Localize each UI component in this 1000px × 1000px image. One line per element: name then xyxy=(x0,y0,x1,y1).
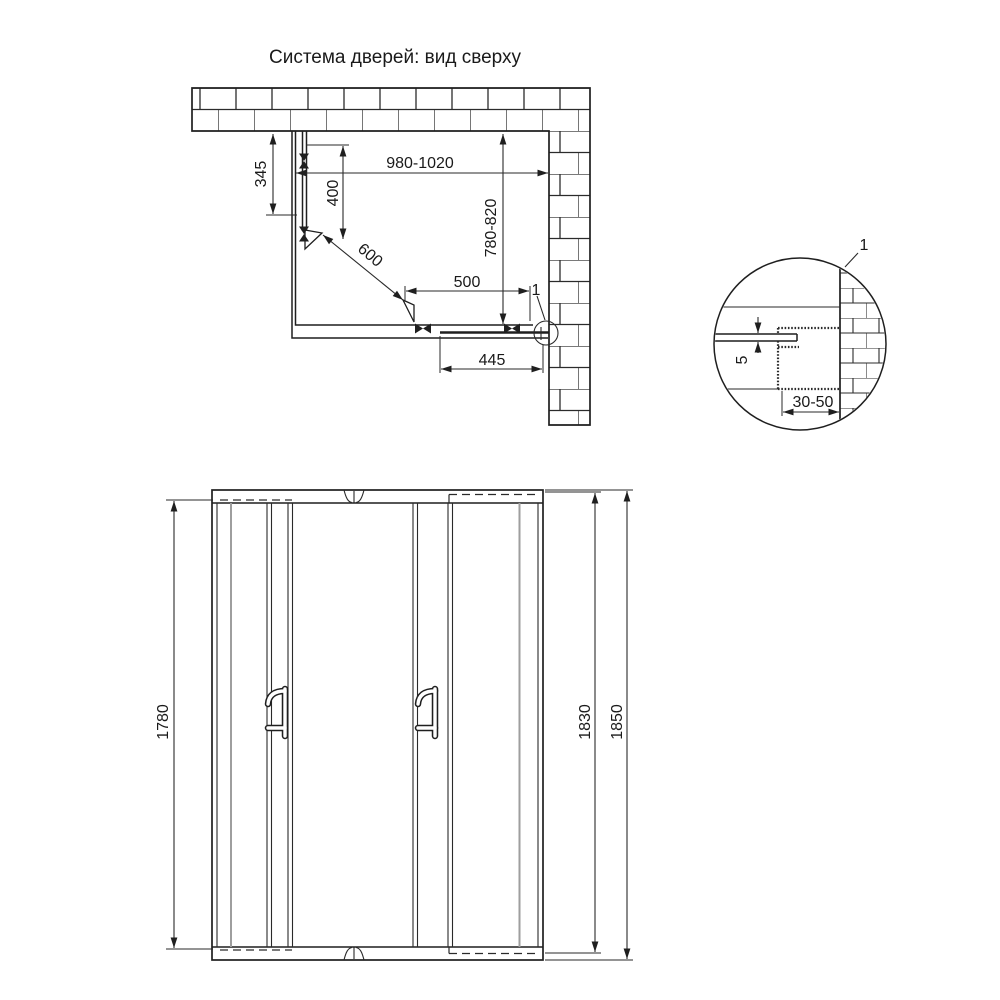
drawing-title: Система дверей: вид сверху xyxy=(269,47,522,68)
dim-width-label: 980-1020 xyxy=(386,155,454,172)
dim-door-panel-label: 445 xyxy=(479,352,506,369)
dim-345-label: 345 xyxy=(253,161,270,188)
rail-bracket-top xyxy=(344,490,364,503)
dim-1850-label: 1850 xyxy=(609,704,626,740)
drawing-canvas: Система дверей: вид сверху 1 xyxy=(0,0,1000,1000)
entry-triangle-lower xyxy=(403,300,414,322)
dim-1780-label: 1780 xyxy=(155,704,172,740)
dim-5-label: 5 xyxy=(734,355,751,364)
dim-1830-label: 1830 xyxy=(577,704,594,740)
dim-3050-label: 30-50 xyxy=(793,394,834,411)
dim-400-label: 400 xyxy=(325,180,342,207)
door-handle-right xyxy=(418,689,435,736)
rail-bracket-bottom xyxy=(344,948,364,961)
top-view: 1 345 400 980-1020 780-820 600 500 445 xyxy=(192,88,590,425)
dim-depth-label: 780-820 xyxy=(483,199,500,258)
detail-ref-leader xyxy=(845,253,858,267)
detail-brick-wall xyxy=(840,258,890,433)
wall-profile-brackets xyxy=(299,154,309,242)
front-view: 1780 1830 1850 xyxy=(155,490,633,960)
detail-ref-label: 1 xyxy=(532,282,541,299)
dim-diagonal-label: 600 xyxy=(354,240,385,270)
detail-wall-profile xyxy=(778,328,840,389)
detail-view: 5 30-50 1 xyxy=(710,237,890,433)
detail-ref-number: 1 xyxy=(860,237,869,254)
brick-wall xyxy=(192,88,590,425)
dim-opening-label: 500 xyxy=(454,274,481,291)
detail-leader-line xyxy=(537,296,545,320)
technical-drawing-svg: Система дверей: вид сверху 1 xyxy=(0,0,1000,1000)
door-handle-left xyxy=(268,689,285,736)
frame-outline xyxy=(212,490,543,960)
